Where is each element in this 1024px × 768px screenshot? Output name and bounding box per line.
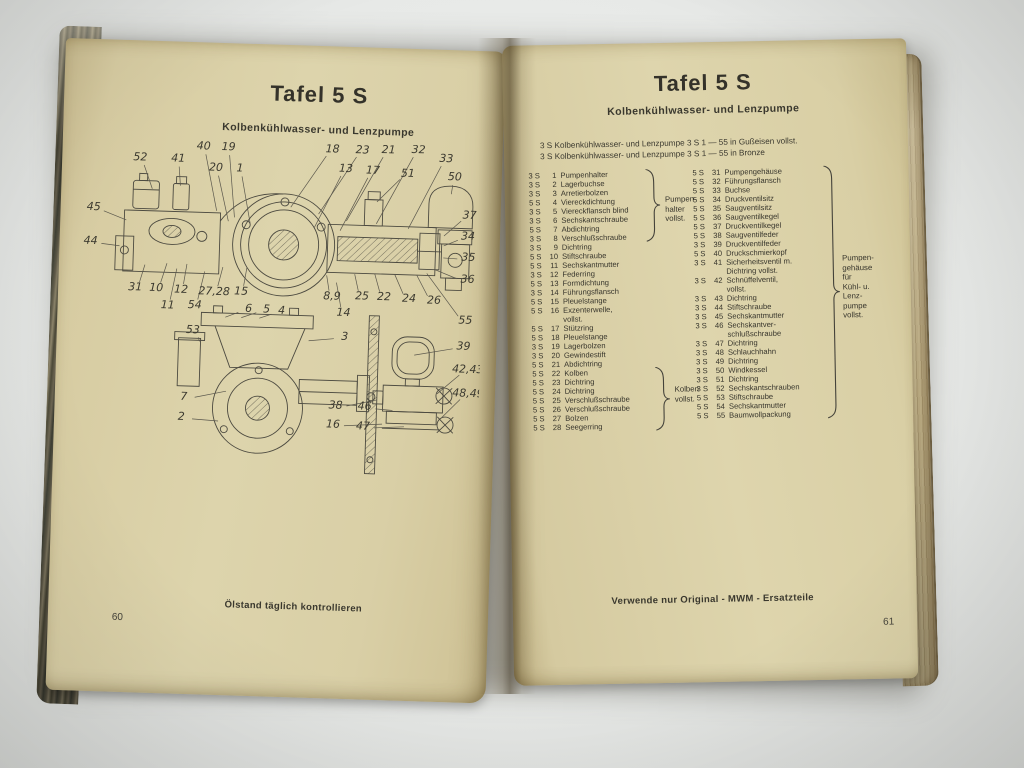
right-page-title: Tafel 5 S (538, 67, 868, 99)
bracket-label-kolben: Kolbenvollst. (675, 384, 700, 403)
diagram-callout-number: 25 (355, 289, 369, 302)
diagram-callout-number: 53 (186, 323, 200, 336)
parts-list-right-column: 5 S31Pumpengehäuse5 S32Führungsflansch5 … (692, 166, 829, 420)
diagram-callout-number: 16 (326, 417, 340, 430)
diagram-callout-number: 19 (221, 140, 235, 153)
diagram-callout-number: 37 (462, 209, 476, 222)
diagram-callout-number: 39 (456, 339, 470, 352)
diagram-callout-number: 17 (366, 163, 380, 176)
diagram-callout-number: 40 (196, 139, 210, 152)
diagram-callout-number: 23 (355, 143, 369, 156)
diagram-callout-number: 8,9 (323, 289, 341, 303)
diagram-callout-number: 41 (171, 151, 185, 164)
diagram-callout-number: 26 (427, 293, 441, 306)
diagram-callout-number: 44 (83, 234, 97, 247)
diagram-callout-number: 54 (187, 298, 201, 311)
parts-list-intro: 3 S Kolbenkühlwasser- und Lenzpumpe 3 S … (540, 135, 798, 162)
diagram-callout-number: 6 (245, 302, 252, 315)
diagram-callout-number: 50 (448, 170, 462, 183)
bracket-pumpenhalter (642, 169, 663, 243)
diagram-callout-number: 34 (461, 230, 475, 243)
diagram-callout-number: 35 (461, 251, 475, 264)
diagram-callout-number: 32 (411, 143, 425, 156)
diagram-callout-number: 12 (174, 283, 188, 296)
diagram-callout-number: 24 (402, 292, 416, 305)
diagram-callout-number: 46 (357, 399, 371, 412)
diagram-callout-number: 47 (356, 419, 370, 432)
diagram-callout-number: 42,43 (452, 362, 484, 376)
diagram-callout-number: 36 (460, 273, 474, 286)
diagram-callout-number: 22 (377, 290, 391, 303)
diagram-callout-number: 3 (341, 330, 348, 343)
bracket-pumpengehaeuse (820, 166, 845, 420)
parts-list-row: 5 S55Baumwollpackung (697, 409, 829, 421)
diagram-callout-number: 52 (133, 150, 147, 163)
right-page: Tafel 5 S Kolbenkühlwasser- und Lenzpump… (502, 38, 918, 686)
bracket-kolben (652, 367, 673, 432)
bracket-label-pumpengehaeuse: Pumpen-gehäusefürKühl- u.Lenz-pumpevolls… (842, 253, 875, 320)
left-page-title: Tafel 5 S (134, 76, 505, 114)
diagram-callout-number: 55 (458, 313, 472, 326)
diagram-callout-number: 7 (180, 390, 187, 403)
diagram-callout-number: 27,28 (198, 284, 230, 298)
diagram-callout-number: 13 (339, 162, 353, 175)
diagram-callout-number: 5 (263, 302, 270, 315)
right-page-number: 61 (883, 617, 894, 628)
left-page-number: 60 (112, 612, 123, 623)
diagram-callout-number: 48,49 (452, 386, 484, 400)
diagram-callout-number: 21 (381, 143, 395, 156)
diagram-callout-number: 2 (177, 410, 184, 423)
diagram-callout-number: 31 (128, 280, 142, 293)
left-page: Tafel 5 S Kolbenkühlwasser- und Lenzpump… (46, 38, 506, 703)
diagram-callout-number: 18 (325, 142, 339, 155)
diagram-callout-number: 20 (209, 161, 223, 174)
diagram-callout-number: 45 (87, 200, 101, 213)
diagram-callout-number: 14 (336, 306, 350, 319)
pump-drawing-lines (109, 173, 474, 477)
right-page-subtitle: Kolbenkühlwasser- und Lenzpumpe (538, 101, 868, 119)
diagram-callout-number: 38 (328, 398, 342, 411)
diagram-callout-number: 10 (149, 281, 163, 294)
bracket-label-pumpenhalter: Pumpen-haltervollst. (665, 194, 697, 223)
pump-sectional-diagram: 5241401920118232132331317515045443734353… (68, 134, 487, 509)
diagram-callout-number: 15 (234, 284, 248, 297)
diagram-callout-number: 4 (278, 304, 285, 317)
right-page-slogan: Verwende nur Original - MWM - Ersatzteil… (543, 591, 883, 609)
diagram-callout-number: 33 (439, 152, 453, 165)
diagram-callout-number: 1 (236, 161, 243, 174)
diagram-callout-number: 11 (160, 298, 174, 311)
diagram-callout-number: 51 (401, 167, 415, 180)
left-page-slogan: Ölstand täglich kontrollieren (108, 596, 478, 619)
